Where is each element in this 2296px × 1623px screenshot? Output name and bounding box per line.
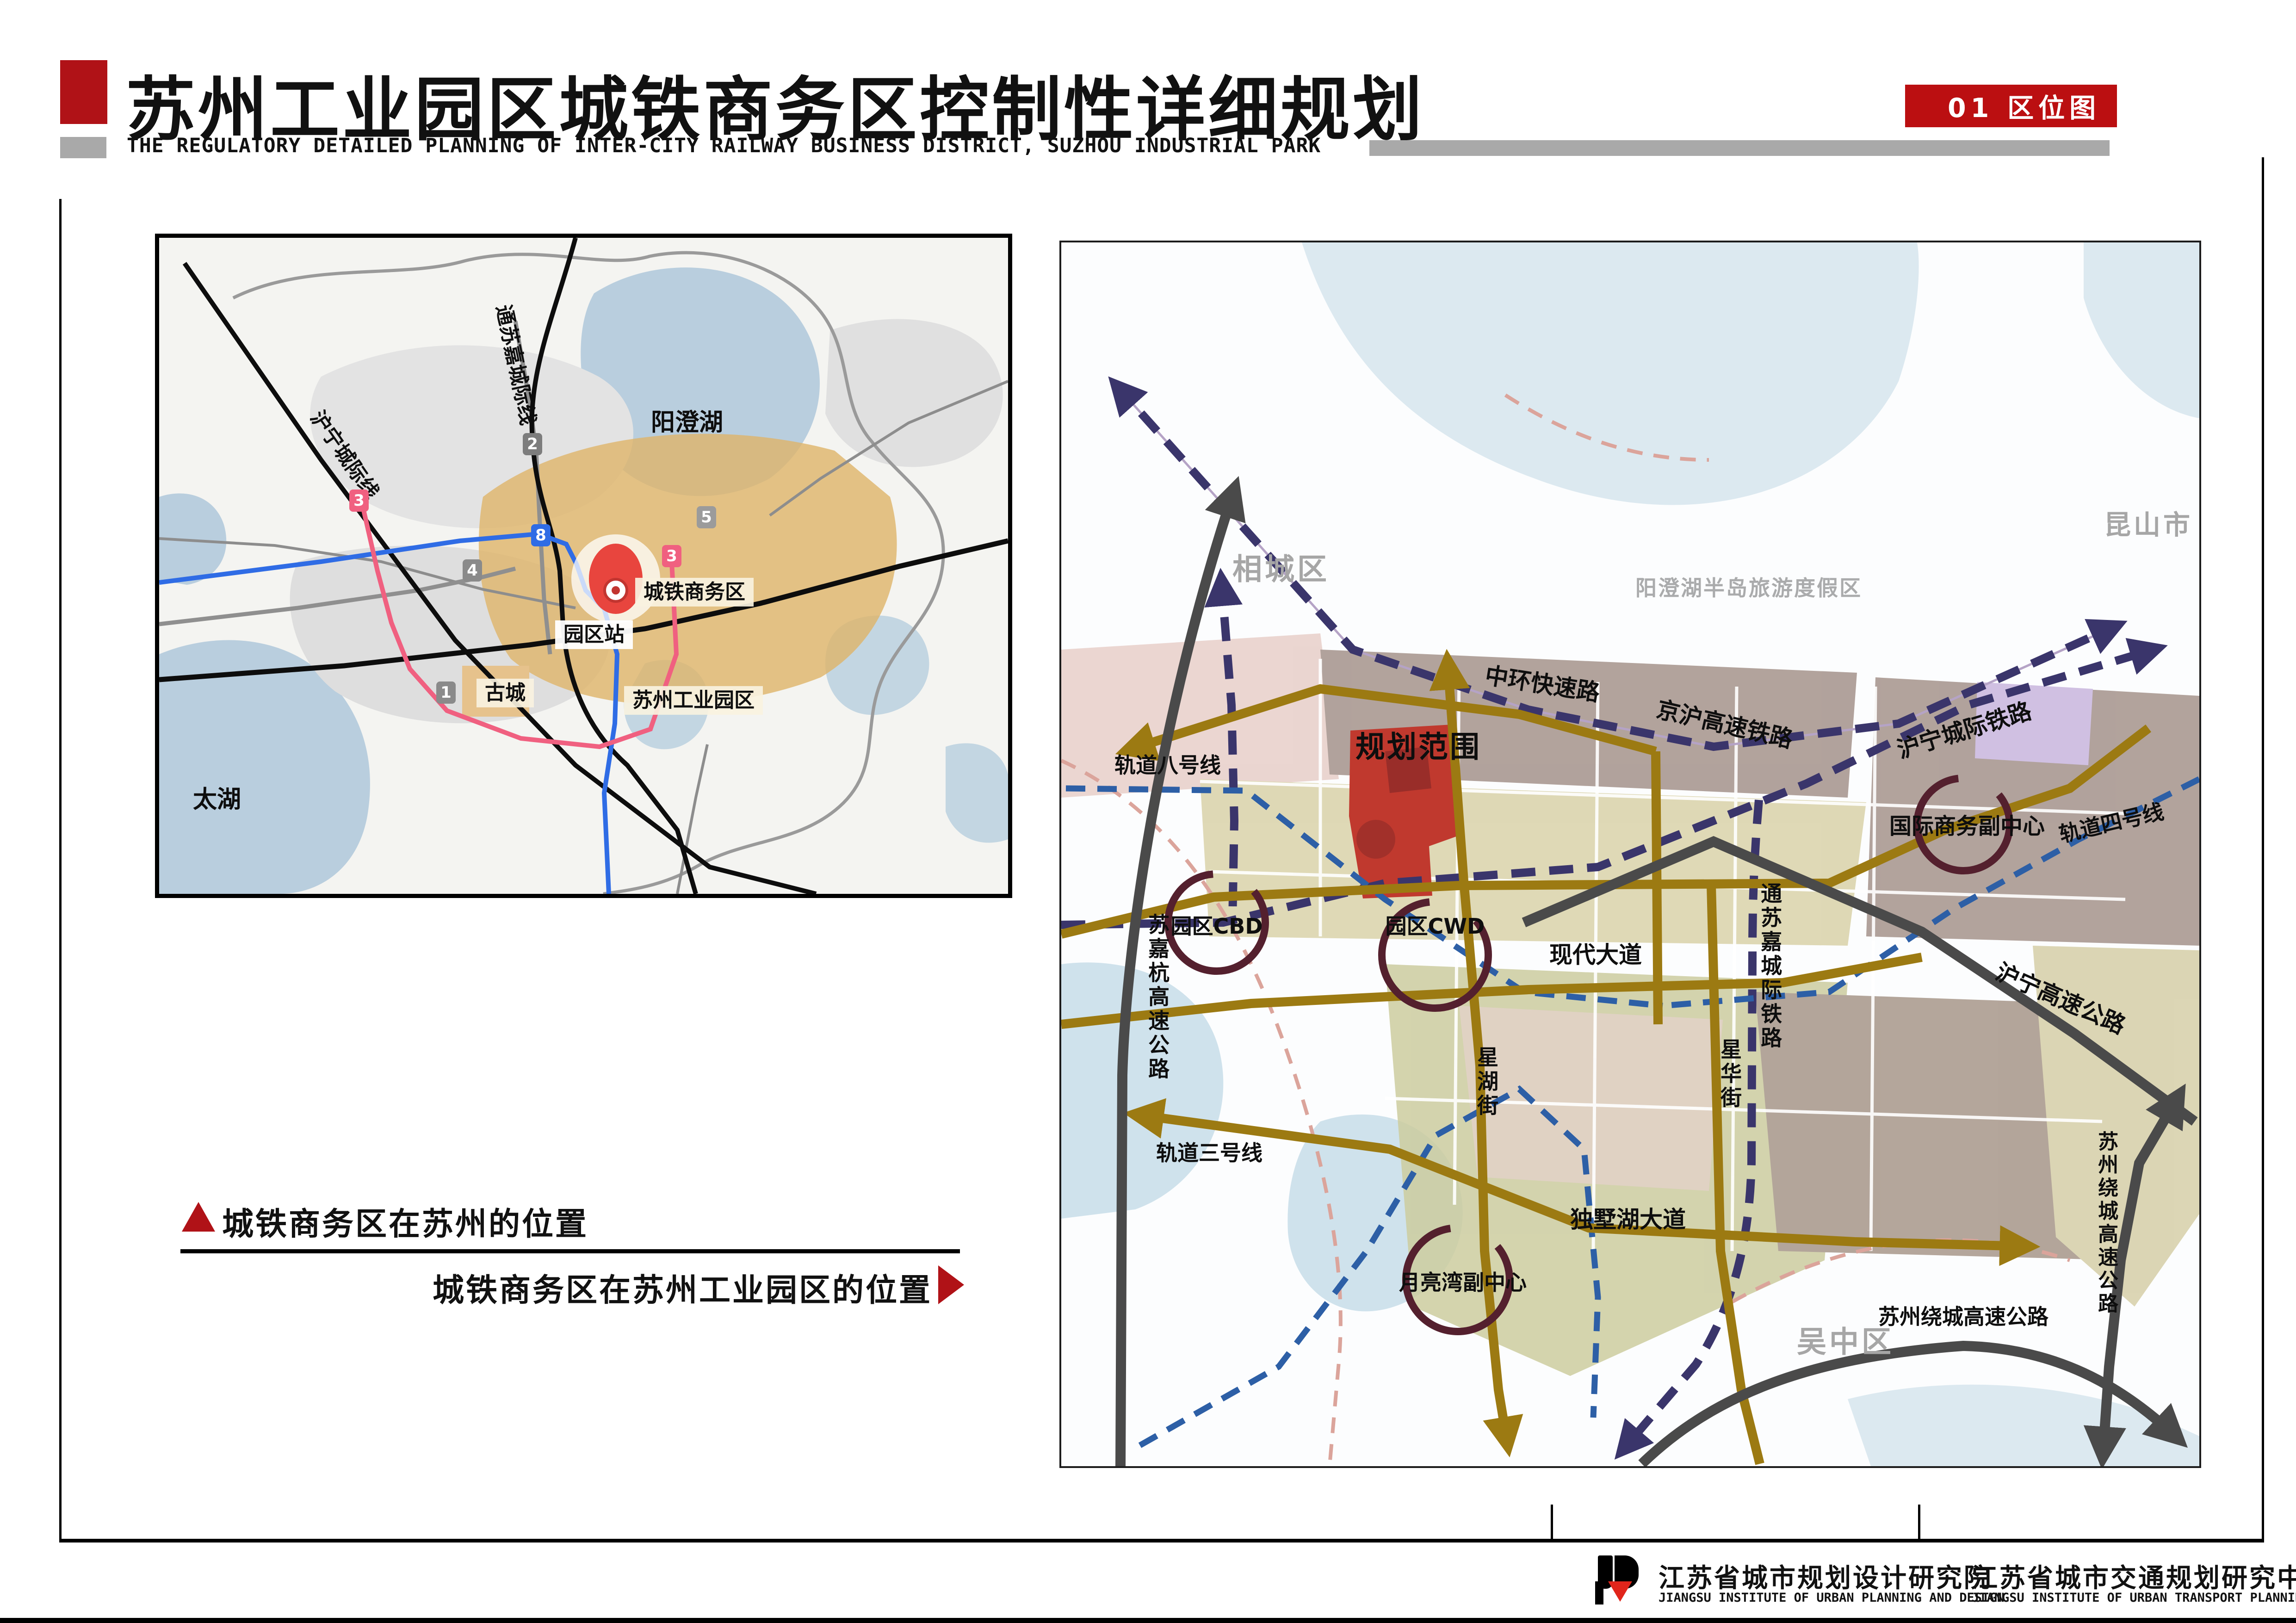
label-tongsujia-rail: 通苏嘉城际铁路 <box>1759 882 1781 1051</box>
label-xiangcheng-district: 相城区 <box>1232 554 1330 585</box>
urban-patch-east <box>825 319 1003 467</box>
label-wuzhong-district: 吴中区 <box>1797 1327 1894 1358</box>
label-kunshan-city: 昆山市 <box>2104 511 2193 539</box>
se-lake-shape <box>946 743 1008 843</box>
title-red-square <box>60 60 107 124</box>
ne-water <box>2084 242 2199 418</box>
label-park-station: 园区站 <box>555 620 633 649</box>
suzhou-overview-map: 阳澄湖 太湖 沪宁城际线 通苏嘉城际线 城铁商务区 园区站 古城 苏州工业园区 … <box>155 234 1012 898</box>
metro-badge-5: 5 <box>697 506 716 528</box>
sheet-number-tab: 01 区位图 <box>1905 85 2117 127</box>
subtitle-gray-square <box>60 137 106 158</box>
plan-area-patch2 <box>1356 820 1395 859</box>
page-bottom-edge <box>0 1618 2296 1623</box>
institute-1-name: 江苏省城市规划设计研究院 <box>1659 1557 1992 1595</box>
footer-tick-1 <box>1551 1505 1553 1540</box>
label-old-town: 古城 <box>477 679 534 707</box>
station-dot <box>612 586 620 595</box>
page-subtitle: THE REGULATORY DETAILED PLANNING OF INTE… <box>127 134 1321 157</box>
label-yangcheng-lake: 阳澄湖 <box>651 410 723 436</box>
metro-badge-2: 2 <box>523 433 542 455</box>
metro-badge-8: 8 <box>531 524 551 546</box>
logo-shape-3 <box>1595 1581 1603 1604</box>
label-ring-expressway-south: 苏州绕城高速公路 <box>1878 1306 2048 1328</box>
caption-line-1: 城铁商务区在苏州的位置 <box>222 1198 588 1244</box>
label-dushuhu-avenue: 独墅湖大道 <box>1570 1208 1686 1232</box>
logo-red-mark <box>1608 1581 1632 1602</box>
label-xinghua-street: 星华街 <box>1719 1038 1741 1110</box>
label-metro-3: 轨道三号线 <box>1156 1142 1262 1164</box>
caption-divider <box>180 1249 960 1253</box>
institute-2-name: 江苏省城市交通规划研究中心 <box>1972 1557 2296 1595</box>
footer-rule <box>59 1539 2264 1542</box>
institute-2-name-en: JIANGSU INSTITUTE OF URBAN TRANSPORT PLA… <box>1972 1591 2296 1605</box>
jp-logo <box>1595 1555 1647 1604</box>
label-metro-8: 轨道八号线 <box>1114 754 1221 776</box>
label-cwd: 园区CWD <box>1386 915 1485 937</box>
cheng-lake <box>1848 1385 2199 1466</box>
caption-up-triangle <box>182 1202 215 1232</box>
caption-line-2: 城铁商务区在苏州工业园区的位置 <box>433 1264 932 1310</box>
planning-sheet: 苏州工业园区城铁商务区控制性详细规划 THE REGULATORY DETAIL… <box>0 0 2296 1623</box>
label-xinghu-street: 星湖街 <box>1475 1046 1498 1118</box>
label-international-business-subcenter: 国际商务副中心 <box>1889 815 2045 838</box>
metro-badge-4: 4 <box>463 559 482 582</box>
jinji-lake <box>1061 962 1223 1219</box>
footer-tick-2 <box>1918 1505 1920 1540</box>
label-railway-business-district: 城铁商务区 <box>635 578 754 607</box>
sip-map-canvas <box>1061 242 2199 1466</box>
yangcheng-lake-east <box>1302 242 1919 505</box>
label-ring-expressway-east: 苏州绕城高速公路 <box>2095 1131 2117 1316</box>
frame-right-border <box>2262 157 2264 1541</box>
road-s <box>677 744 707 894</box>
sip-location-map: 相城区 昆山市 吴中区 阳澄湖半岛旅游度假区 中环快速路 轨道八号线 京沪高速铁… <box>1059 241 2201 1468</box>
label-xiandai-avenue: 现代大道 <box>1549 943 1642 967</box>
label-sujiahang-expressway: 苏嘉杭高速公路 <box>1146 913 1169 1082</box>
header-gray-bar <box>1369 140 2110 156</box>
label-plan-area: 规划范围 <box>1355 732 1481 763</box>
metro-badge-1: 1 <box>436 681 456 704</box>
label-yangchenghu-resort: 阳澄湖半岛旅游度假区 <box>1635 577 1862 599</box>
label-sip: 苏州工业园区 <box>624 686 763 715</box>
label-taihu: 太湖 <box>193 787 241 813</box>
label-moon-bay-subcenter: 月亮湾副中心 <box>1399 1271 1527 1294</box>
suzhou-overview-canvas <box>159 238 1008 894</box>
caption-right-triangle <box>938 1265 964 1304</box>
metro-badge-3a: 3 <box>349 489 369 512</box>
frame-left-border <box>59 199 62 1541</box>
metro-badge-3b: 3 <box>662 545 681 567</box>
institute-1-name-en: JIANGSU INSTITUTE OF URBAN PLANNING AND … <box>1659 1591 2005 1605</box>
label-cbd: 园区CBD <box>1170 915 1262 937</box>
